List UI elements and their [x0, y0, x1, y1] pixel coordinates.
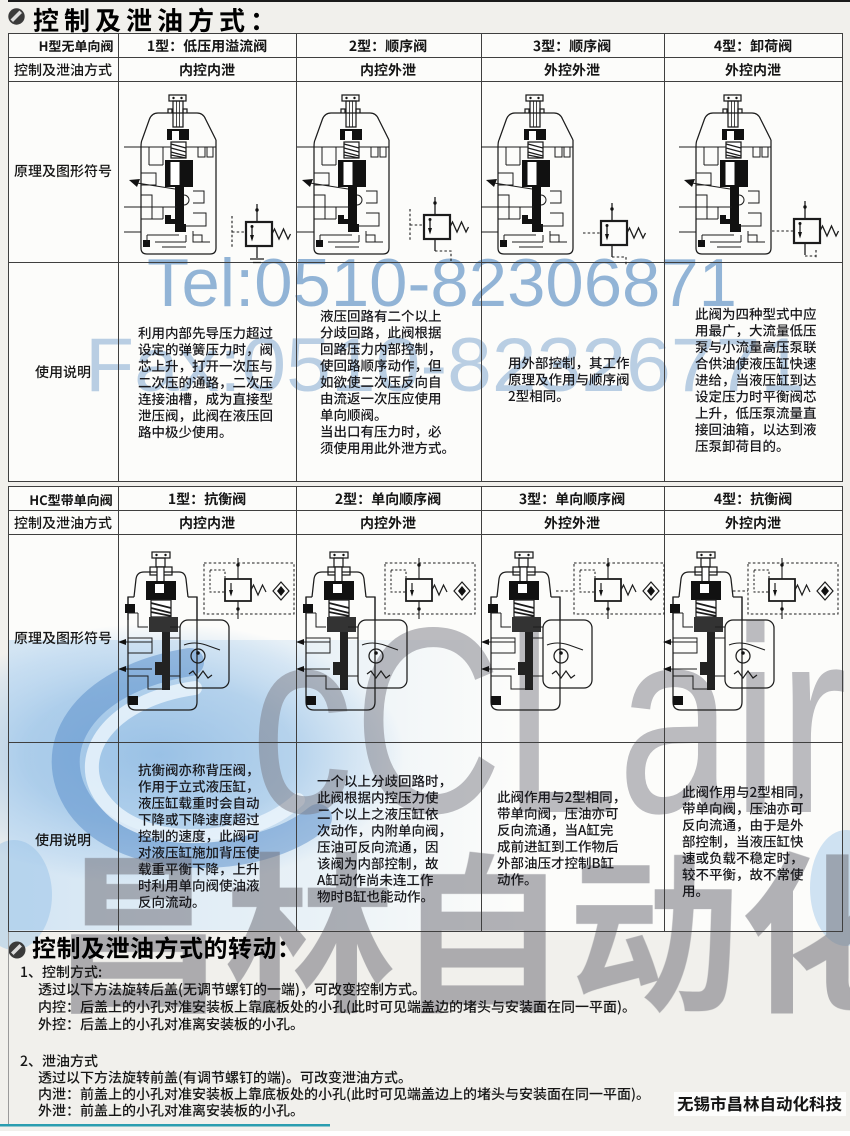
svg-text:Tel:0510-82306871: Tel:0510-82306871 — [147, 245, 737, 321]
